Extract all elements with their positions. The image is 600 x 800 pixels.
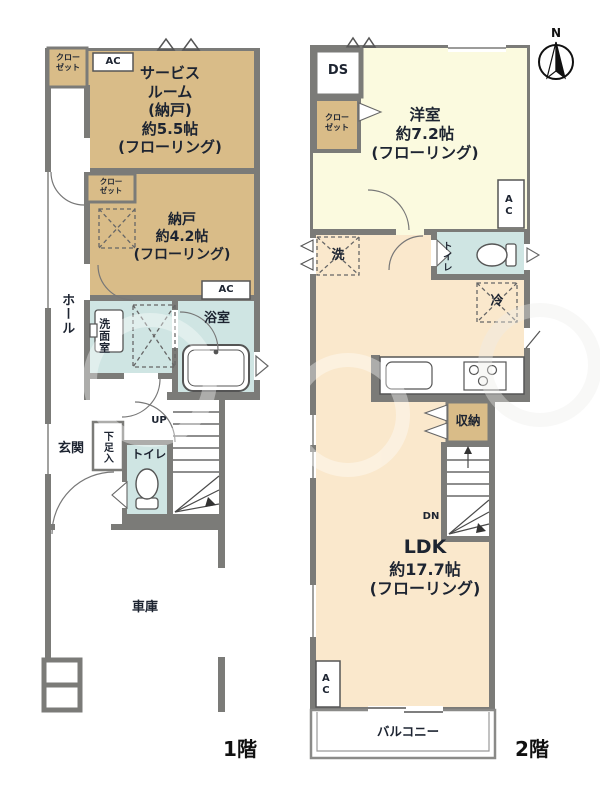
toilet-label-1f: トイレ (127, 447, 171, 461)
bathroom-label: 浴室 (192, 311, 242, 327)
western-room-label: 洋室 約7.2帖 (フローリング) (350, 106, 500, 164)
toilet-label-2f: トイレ (440, 238, 452, 276)
floor1-title: 1階 (216, 737, 264, 762)
ds-label: DS (315, 63, 361, 79)
shoe-cabinet-label: 下足入 (100, 424, 112, 470)
garage-walls (44, 527, 225, 712)
genkan-label: 玄関 (51, 441, 91, 457)
dn-label: DN (418, 511, 444, 523)
window-2f-right-mid (524, 328, 540, 348)
storage-label: 収納 (446, 413, 490, 429)
ac-right-label-2f: AC (502, 186, 514, 226)
laundry-label: 洗 (326, 248, 350, 264)
hall-label: ホール (58, 272, 74, 356)
closet-top-label: クローゼット (46, 53, 90, 73)
window-1f-left-upper (45, 172, 51, 308)
ldk-label: LDK 約17.7帖 (フローリング) (345, 536, 505, 599)
service-room-label: サービス ルーム (納戸) 約5.5帖 (フローリング) (95, 64, 245, 157)
toilet-icon-2f (477, 244, 516, 266)
balcony-label: バルコニー (333, 724, 483, 740)
window-2f-top (448, 44, 506, 52)
window-2f-left-laundry (301, 238, 316, 274)
window-2f-toilet (524, 244, 539, 270)
ac-left-label-2f: AC (319, 666, 331, 704)
compass-north-label: N (548, 26, 564, 41)
toilet-icon-1f (136, 469, 158, 509)
nando-label: 納戸 約4.2帖 (フローリング) (107, 212, 257, 264)
closet-mid-label: クローゼット (88, 177, 134, 196)
floorplan-canvas: クローゼット AC サービス ルーム (納戸) 約5.5帖 (フローリング) ク… (0, 0, 600, 800)
garage-label: 車庫 (125, 600, 165, 616)
ac-mid-label-1f: AC (202, 284, 250, 296)
up-label: UP (146, 415, 172, 427)
floorplan-graphics (0, 0, 600, 800)
compass-icon (539, 42, 573, 79)
washroom-label: 洗面室 (97, 306, 111, 366)
window-1f-bath (254, 352, 268, 380)
fridge-label: 冷 (485, 294, 509, 310)
floor2-title: 2階 (506, 737, 558, 762)
stairs-2f (447, 446, 489, 536)
